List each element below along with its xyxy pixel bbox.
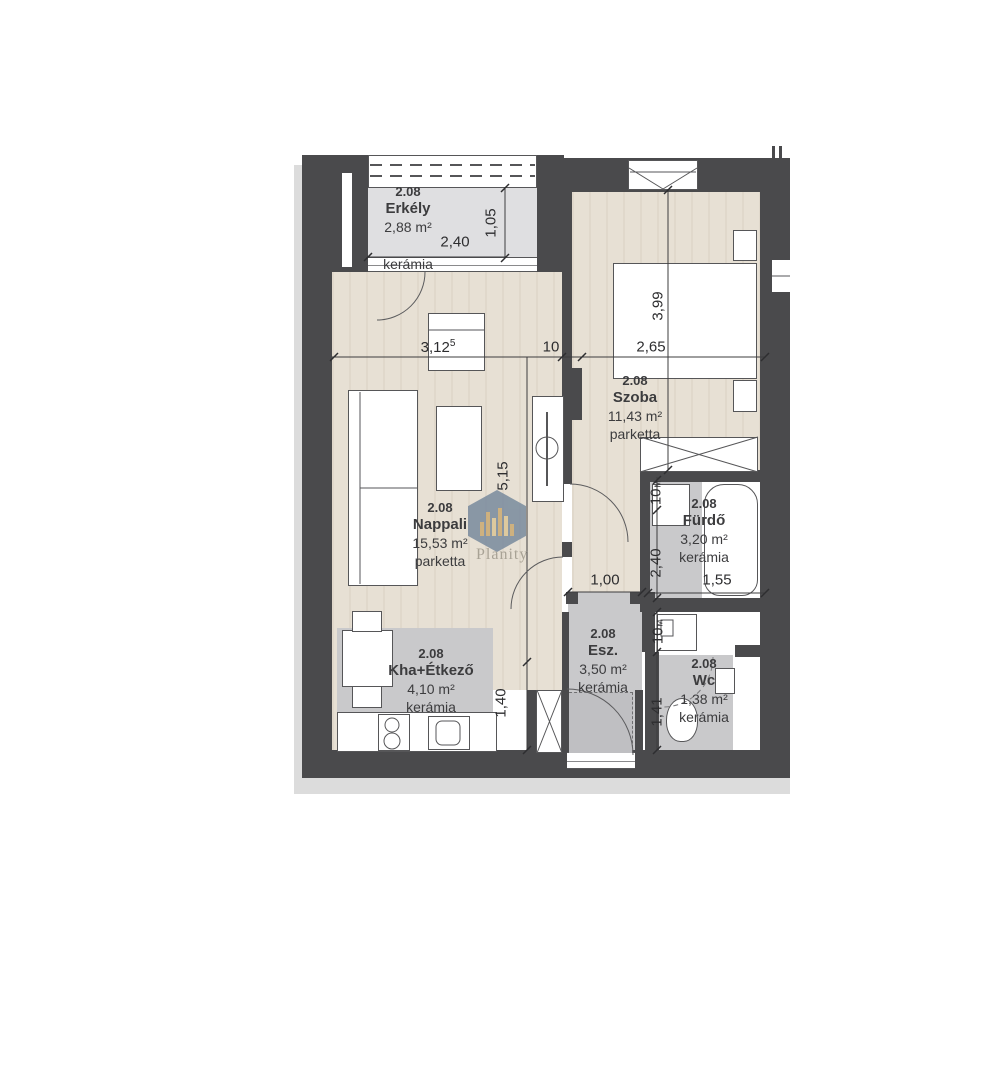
watermark-building-bar [498, 508, 502, 536]
stove [378, 714, 410, 751]
floorplan-canvas: 2.08 Erkély 2,88 m² kerámia 2.08 Szoba 1… [0, 0, 1000, 1071]
floor-vestibule [572, 470, 640, 612]
roof-tick-2 [779, 146, 782, 158]
room-label-esz: 2.08 Esz. 3,50 m² kerámia [572, 626, 634, 696]
wall-nappali-corridor [562, 542, 572, 557]
wall-corridor-left-lower [562, 612, 569, 752]
room-label-wc: 2.08 Wc 1,38 m² kerámia [676, 656, 732, 726]
nightstand-bottom [733, 380, 757, 412]
room-unit: 2.08 [370, 184, 446, 200]
dim-wall-thickness-top: 10 [543, 339, 560, 356]
room-unit: 2.08 [602, 373, 668, 389]
dim-szoba-length: 3,99 [650, 291, 667, 320]
dim-furdo-length: 2,40 [648, 548, 665, 577]
watermark-building-bar [492, 518, 496, 536]
kitchen-counter [337, 712, 497, 752]
room-floor: kerámia [377, 256, 439, 274]
room-floor: parketta [602, 426, 668, 444]
watermark-building-bar [504, 516, 508, 536]
room-label-nappali: 2.08 Nappali 15,53 m² parketta [404, 500, 476, 570]
dim-erkely-width: 2,40 [440, 234, 469, 251]
room-area: 11,43 m² [602, 408, 668, 426]
wall-furdo-bottom [648, 598, 790, 612]
room-name: Erkély [370, 200, 446, 219]
room-label-erkely: 2.08 Erkély 2,88 m² [370, 184, 446, 237]
room-unit: 2.08 [676, 656, 732, 672]
window-right-wall [772, 260, 790, 292]
dining-chair-top [352, 611, 382, 632]
room-name: Kha+Étkező [382, 662, 480, 681]
dim-furdo-niche: 10M [648, 481, 665, 505]
dining-chair-bottom [352, 686, 382, 708]
room-floor: kerámia [676, 549, 732, 567]
dim-szoba-width: 2,65 [636, 339, 665, 356]
wall-nub-corridor-right [630, 592, 642, 604]
dim-erkely-depth: 1,05 [483, 208, 500, 237]
room-name: Fürdő [676, 512, 732, 531]
room-label-kha: 2.08 Kha+Étkező 4,10 m² kerámia [382, 646, 480, 716]
window-szoba [628, 160, 698, 190]
tv-unit [532, 396, 564, 502]
watermark-brand: Planity [476, 546, 528, 564]
dim-wc-length: 1,41 [649, 697, 666, 726]
window-balcony-left [342, 173, 352, 267]
room-unit: 2.08 [382, 646, 480, 662]
room-floor: kerámia [572, 679, 634, 697]
room-unit: 2.08 [404, 500, 476, 516]
wall-right-outer [760, 158, 790, 778]
coffee-table [436, 406, 482, 491]
room-label-furdo: 2.08 Fürdő 3,20 m² kerámia [676, 496, 732, 566]
coat-closet [536, 690, 562, 753]
room-name: Nappali [404, 516, 476, 535]
room-name: Szoba [602, 389, 668, 408]
room-unit: 2.08 [676, 496, 732, 512]
room-floor: kerámia [382, 699, 480, 717]
entry-door-threshold [567, 752, 635, 769]
bed [613, 263, 757, 379]
dim-nappali-width: 3,125 [421, 338, 456, 356]
room-area: 1,38 m² [676, 691, 732, 709]
room-floor: parketta [404, 553, 476, 571]
room-area: 4,10 m² [382, 681, 480, 699]
watermark-building-bar [480, 522, 484, 536]
wall-bottom [302, 750, 790, 778]
watermark-building-bar [510, 524, 514, 536]
nightstand-top [733, 230, 757, 261]
dim-kha-length: 1,40 [493, 688, 510, 717]
room-floor: kerámia [676, 709, 732, 727]
dim-furdo-width: 1,55 [702, 572, 731, 589]
wall-wc-top-nub [735, 645, 760, 657]
room-unit: 2.08 [572, 626, 634, 642]
room-label-szoba: 2.08 Szoba 11,43 m² parketta [602, 373, 668, 443]
dim-nappali-length: 5,15 [495, 461, 512, 490]
wall-entry-right-stub [635, 690, 643, 753]
room-area: 2,88 m² [370, 219, 446, 237]
kitchen-sink [428, 716, 470, 750]
room-name: Wc [676, 672, 732, 691]
wall-nub-corridor-left [566, 592, 578, 604]
room-name: Esz. [572, 642, 634, 661]
entry-door-leaf [569, 692, 633, 753]
dim-esz-width: 1,00 [590, 572, 619, 589]
roof-tick-1 [772, 146, 775, 158]
wall-left-outer [302, 155, 332, 778]
watermark-building-bar [486, 512, 490, 536]
wc-shaft [733, 655, 760, 753]
wall-pillar-mid [562, 368, 582, 420]
room-area: 3,20 m² [676, 531, 732, 549]
dim-wc-niche: 10M [650, 620, 667, 644]
room-area: 15,53 m² [404, 535, 476, 553]
room-floor-erkely: kerámia [377, 256, 439, 274]
room-area: 3,50 m² [572, 661, 634, 679]
